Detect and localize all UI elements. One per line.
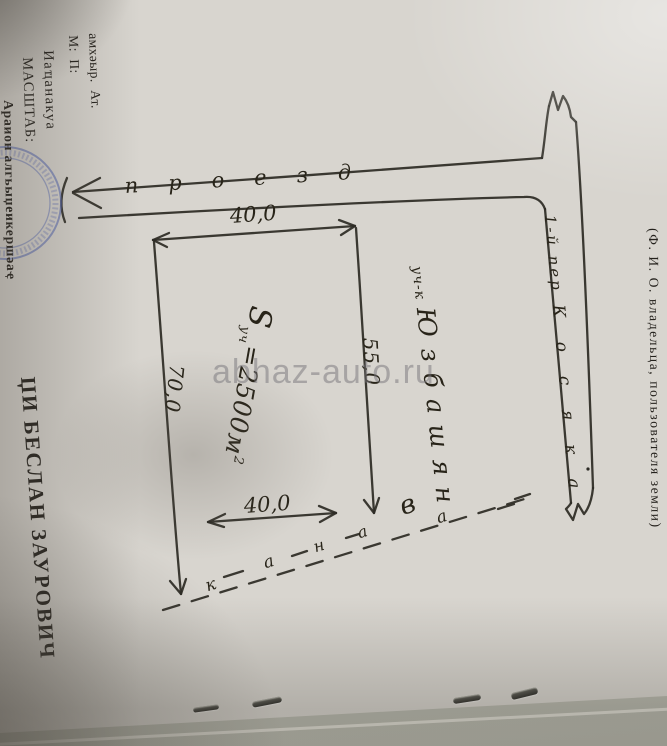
area-subscript: уч [235, 325, 253, 345]
parcel-left-edge [154, 242, 181, 594]
street-label-name: Косяка [548, 304, 586, 513]
street-label-prefix: 1-й пер [541, 214, 566, 293]
form-header-line-4: МАСШТАБ: [18, 57, 38, 143]
road-arrowhead [73, 178, 101, 208]
parcel-left-bottom-arrow [170, 579, 186, 594]
parcel-top-edge [153, 226, 355, 240]
site-watermark: abhaz-auto.ru [212, 353, 435, 392]
owner-caption: (Ф. И. О. владельца, пользователя земли) [645, 228, 664, 529]
dim-top-label: 40,0 [229, 201, 277, 228]
road-arrow-tick [61, 178, 67, 222]
form-header-line-1: амхәыр. Ат. [85, 33, 104, 109]
form-header-line-5: Араион алгьыџеикершәаҿ [0, 100, 19, 280]
form-header-line-3: Иаҵанакуа [39, 50, 59, 131]
form-header-line-2: М: П: [65, 35, 82, 74]
street-top-arrow [549, 92, 576, 122]
neighbor-name: Юзбашян [411, 306, 462, 515]
neighbor-prefix: уч-к [408, 265, 427, 300]
document-photo: амхәыр. Ат. М: П: Иаҵанакуа МАСШТАБ: Ара… [0, 0, 667, 746]
street-left-upper [542, 106, 549, 158]
parcel-right-bottom-arrow [364, 498, 379, 513]
dim-left-label: 70,0 [160, 363, 189, 414]
dim-inner-label: 40,0 [243, 491, 291, 518]
road-bottom-line [79, 197, 545, 218]
